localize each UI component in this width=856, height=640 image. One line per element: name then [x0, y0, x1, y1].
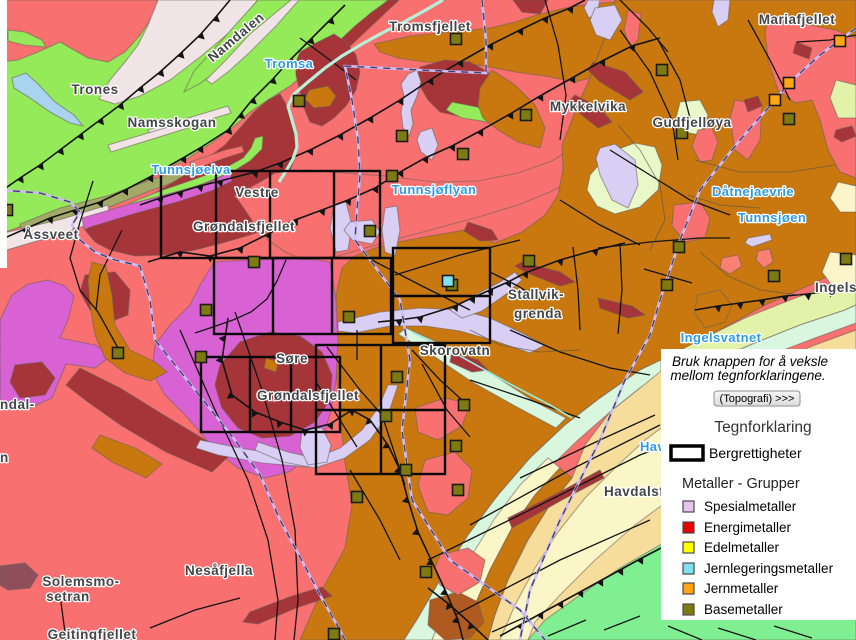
- svg-text:Jernlegeringsmetaller: Jernlegeringsmetaller: [704, 561, 834, 576]
- svg-text:Dåtnejaevrie: Dåtnejaevrie: [712, 184, 794, 199]
- svg-text:Tromsa: Tromsa: [265, 56, 314, 71]
- svg-text:Namsskogan: Namsskogan: [127, 115, 216, 130]
- svg-text:setran: setran: [46, 589, 90, 604]
- svg-text:Ingelsvatnet: Ingelsvatnet: [681, 330, 762, 345]
- svg-text:Nesåfjella: Nesåfjella: [185, 563, 253, 578]
- svg-text:Trones: Trones: [71, 82, 118, 97]
- svg-text:Tunnsjøflyan: Tunnsjøflyan: [392, 182, 477, 197]
- svg-text:Ingelsva: Ingelsva: [815, 280, 856, 295]
- svg-text:Åssveet: Åssveet: [23, 227, 78, 242]
- svg-text:Bergrettigheter: Bergrettigheter: [709, 445, 802, 461]
- svg-text:Grøndalsfjellet: Grøndalsfjellet: [193, 219, 295, 234]
- svg-text:Spesialmetaller: Spesialmetaller: [704, 499, 797, 514]
- svg-text:Mykkelvika: Mykkelvika: [550, 99, 626, 114]
- svg-text:Jernmetaller: Jernmetaller: [704, 581, 779, 596]
- svg-text:Tunnsjøelva: Tunnsjøelva: [151, 162, 231, 177]
- svg-text:Edelmetaller: Edelmetaller: [704, 540, 780, 555]
- svg-text:Bruk knappen for å veksle: Bruk knappen for å veksle: [672, 354, 828, 369]
- svg-text:Basemetaller: Basemetaller: [704, 602, 783, 617]
- svg-text:Skorovatn: Skorovatn: [420, 343, 491, 358]
- svg-text:Tegnforklaring: Tegnforklaring: [714, 419, 811, 436]
- svg-text:Energimetaller: Energimetaller: [704, 520, 792, 535]
- svg-text:Grøndalsfjellet: Grøndalsfjellet: [257, 388, 359, 403]
- svg-text:Mariafjellet: Mariafjellet: [759, 12, 836, 27]
- svg-text:(Topografi) >>>: (Topografi) >>>: [720, 393, 795, 405]
- svg-text:Søre: Søre: [276, 351, 308, 366]
- svg-text:n: n: [0, 450, 9, 465]
- svg-text:Tunnsjøen: Tunnsjøen: [738, 210, 806, 225]
- svg-text:Vestre: Vestre: [235, 185, 279, 200]
- svg-text:mellom tegnforklaringene.: mellom tegnforklaringene.: [670, 368, 825, 383]
- svg-text:ndal-: ndal-: [0, 397, 35, 412]
- svg-text:grenda: grenda: [514, 306, 562, 321]
- svg-text:Metaller - Grupper: Metaller - Grupper: [682, 476, 800, 492]
- svg-text:Geitingfjellet: Geitingfjellet: [48, 627, 137, 640]
- svg-text:Gudfjelløya: Gudfjelløya: [652, 115, 731, 130]
- svg-text:Solemsmo-: Solemsmo-: [42, 574, 119, 589]
- svg-text:Stallvik-: Stallvik-: [508, 287, 564, 302]
- svg-text:Tromsfjellet: Tromsfjellet: [389, 19, 471, 34]
